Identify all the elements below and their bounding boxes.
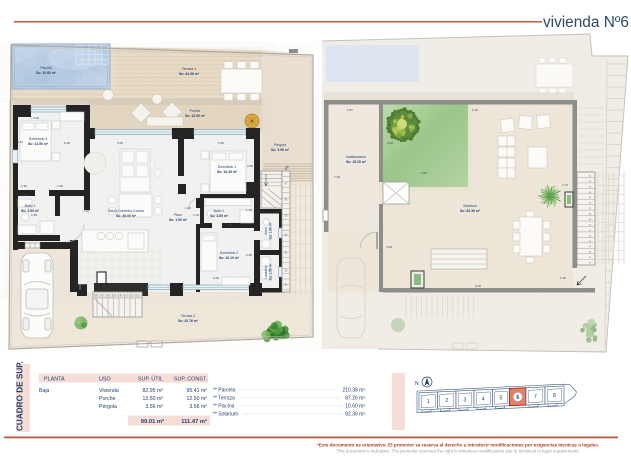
svg-text:9.10: 9.10 xyxy=(472,108,478,112)
svg-text:2.90: 2.90 xyxy=(31,213,37,217)
svg-text:Terraza 1: Terraza 1 xyxy=(182,67,196,71)
svg-text:** Piscina: ** Piscina xyxy=(213,404,235,410)
svg-text:7.20: 7.20 xyxy=(83,209,89,213)
svg-text:SUP. ÚTIL: SUP. ÚTIL xyxy=(138,376,163,383)
svg-text:Su: 1.50 m²: Su: 1.50 m² xyxy=(269,263,273,280)
svg-text:Solarium: Solarium xyxy=(463,204,477,208)
svg-text:Salón-Comedor-Cocina: Salón-Comedor-Cocina xyxy=(108,209,144,213)
svg-text:Su: 36.00 m²: Su: 36.00 m² xyxy=(116,214,137,218)
svg-text:Dormitorio 1: Dormitorio 1 xyxy=(218,165,237,169)
svg-text:1.40: 1.40 xyxy=(21,193,27,197)
svg-text:4.00: 4.00 xyxy=(421,171,427,175)
svg-text:7: 7 xyxy=(534,394,537,400)
svg-text:Su: 10.10 m²: Su: 10.10 m² xyxy=(219,256,240,260)
svg-text:2: 2 xyxy=(445,398,448,404)
svg-text:210.38 m²: 210.38 m² xyxy=(342,388,365,394)
svg-text:Porche: Porche xyxy=(99,396,116,402)
svg-text:4.28: 4.28 xyxy=(386,245,392,249)
svg-text:111.47 m²: 111.47 m² xyxy=(181,418,207,425)
svg-text:12.50 m²: 12.50 m² xyxy=(187,396,208,402)
svg-text:Su: 1.90 m²: Su: 1.90 m² xyxy=(169,218,188,222)
svg-text:Su: 82.39 m²: Su: 82.39 m² xyxy=(460,209,481,213)
svg-text:9.30: 9.30 xyxy=(475,284,481,288)
svg-text:08 07 06 05 04 03 02 01: 08 07 06 05 04 03 02 01 xyxy=(94,295,140,298)
svg-text:Dormitorio 2: Dormitorio 2 xyxy=(220,251,239,255)
svg-text:Paso: Paso xyxy=(174,213,182,217)
svg-text:vivienda Nº6: vivienda Nº6 xyxy=(543,14,629,31)
svg-text:1.30: 1.30 xyxy=(560,276,566,280)
svg-text:Su: 10.60 m²: Su: 10.60 m² xyxy=(36,71,57,75)
svg-text:7.72: 7.72 xyxy=(562,183,568,187)
svg-text:Su: 10.45 m²: Su: 10.45 m² xyxy=(217,170,238,174)
svg-text:5.00: 5.00 xyxy=(117,141,123,145)
svg-text:8: 8 xyxy=(553,393,556,399)
svg-text:Porche: Porche xyxy=(190,109,201,113)
svg-text:PLANTA: PLANTA xyxy=(44,377,65,383)
svg-text:CUADRO DE SUP.: CUADRO DE SUP. xyxy=(16,361,25,431)
svg-text:6.30: 6.30 xyxy=(64,141,70,145)
svg-text:Su: 42.76 m²: Su: 42.76 m² xyxy=(178,319,199,323)
svg-text:6: 6 xyxy=(516,395,519,401)
svg-text:** Parcela: ** Parcela xyxy=(213,388,235,394)
svg-text:Su: 18.00 m²: Su: 18.00 m² xyxy=(346,160,367,164)
svg-text:Su: 14.50 m²: Su: 14.50 m² xyxy=(28,142,49,146)
svg-text:** Terraza: ** Terraza xyxy=(213,396,235,402)
svg-text:95.41 m²: 95.41 m² xyxy=(187,388,208,394)
svg-text:99.01 m²: 99.01 m² xyxy=(141,418,164,425)
svg-text:1.00: 1.00 xyxy=(193,213,199,217)
svg-text:2.60: 2.60 xyxy=(227,223,233,227)
svg-text:Baño 1: Baño 1 xyxy=(214,209,225,213)
svg-text:3.56 m²: 3.56 m² xyxy=(145,404,163,410)
svg-text:2.60: 2.60 xyxy=(246,253,252,257)
svg-text:SUP. CONST.: SUP. CONST. xyxy=(174,377,207,383)
svg-text:N: N xyxy=(415,381,419,387)
svg-text:3: 3 xyxy=(464,397,467,403)
svg-text:7.00: 7.00 xyxy=(334,175,340,179)
svg-text:1.50: 1.50 xyxy=(21,184,27,188)
svg-text:*Este documento es orientativo: *Este documento es orientativo. El promo… xyxy=(317,443,599,448)
svg-text:1.00: 1.00 xyxy=(185,206,191,210)
svg-text:Pérgola: Pérgola xyxy=(274,143,286,147)
svg-text:12.50 m²: 12.50 m² xyxy=(143,396,164,402)
svg-text:3.83: 3.83 xyxy=(387,141,393,145)
svg-text:82.36 m²: 82.36 m² xyxy=(345,412,365,418)
svg-text:Terraza 2: Terraza 2 xyxy=(181,314,195,318)
svg-text:10.60 m²: 10.60 m² xyxy=(345,404,365,410)
svg-text:This document is indicative. T: This document is indicative. The promote… xyxy=(336,449,579,454)
svg-text:3.40: 3.40 xyxy=(17,140,23,144)
svg-text:Dormitorio 3: Dormitorio 3 xyxy=(29,137,48,141)
svg-text:3.56 m²: 3.56 m² xyxy=(189,404,207,410)
svg-text:USO: USO xyxy=(99,377,111,383)
svg-text:3.60: 3.60 xyxy=(213,276,219,280)
svg-text:08: 08 xyxy=(285,165,289,169)
svg-text:Su: 44.36 m²: Su: 44.36 m² xyxy=(179,72,200,76)
svg-text:Baño 1: Baño 1 xyxy=(25,204,36,208)
svg-text:** Solarium: ** Solarium xyxy=(213,412,238,418)
svg-text:87.26 m²: 87.26 m² xyxy=(345,396,365,402)
svg-text:Baja: Baja xyxy=(39,388,49,394)
svg-text:3.00: 3.00 xyxy=(33,116,39,120)
svg-text:Aseo: Aseo xyxy=(264,227,268,234)
svg-text:2.57: 2.57 xyxy=(347,108,353,112)
svg-text:1.40: 1.40 xyxy=(246,208,252,212)
svg-text:5: 5 xyxy=(500,396,503,402)
svg-text:Vivienda: Vivienda xyxy=(99,388,119,394)
svg-text:Su: 3.96 m²: Su: 3.96 m² xyxy=(271,148,290,152)
svg-text:Su: 3.65 m²: Su: 3.65 m² xyxy=(210,214,229,218)
svg-text:2.80: 2.80 xyxy=(247,164,253,168)
svg-text:3.60: 3.60 xyxy=(218,141,224,145)
svg-text:Lavadero: Lavadero xyxy=(264,265,268,279)
svg-text:Instalaciones: Instalaciones xyxy=(346,155,366,159)
svg-text:1: 1 xyxy=(427,399,430,405)
svg-text:Piscina: Piscina xyxy=(41,66,52,70)
svg-text:4: 4 xyxy=(482,397,485,403)
svg-text:1.90: 1.90 xyxy=(57,184,63,188)
svg-text:Pérgola: Pérgola xyxy=(99,404,117,410)
svg-text:Su: 1.60 m²: Su: 1.60 m² xyxy=(269,222,273,239)
svg-text:82.95 m²: 82.95 m² xyxy=(143,388,164,394)
svg-text:Su: 12.50 m²: Su: 12.50 m² xyxy=(185,114,206,118)
